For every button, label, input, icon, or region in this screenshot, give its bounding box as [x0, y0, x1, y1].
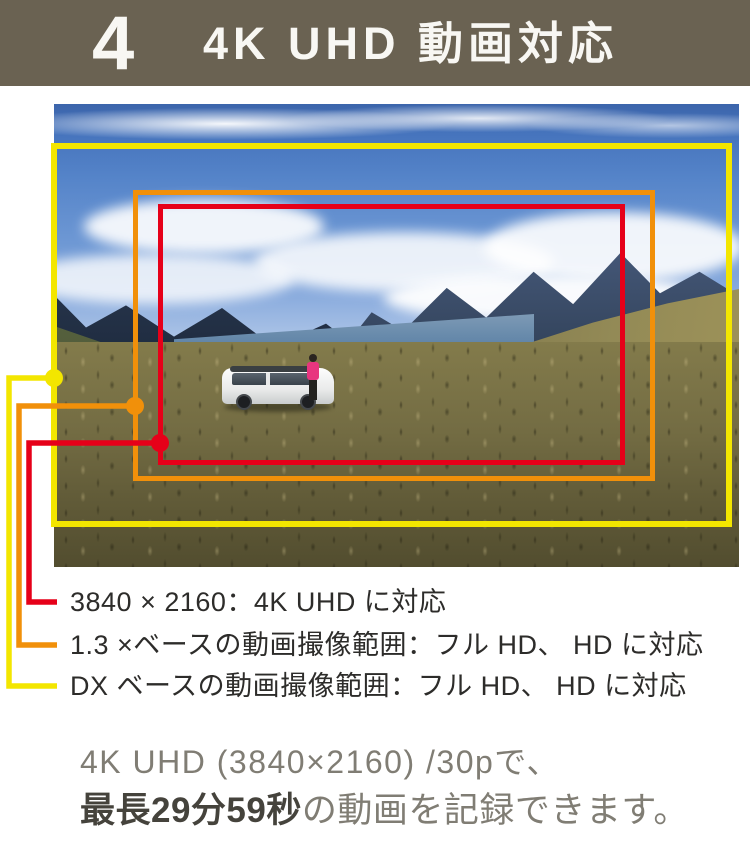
footer-spec-line: 4K UHD (3840×2160) /30pで、: [80, 737, 560, 783]
legend-item-1-3x: 1.3 ×ベースの動画撮像範囲：フル HD、 HD に対応: [70, 629, 703, 661]
footer-duration-emphasis: 最長29分59秒: [80, 791, 302, 830]
page-title: 4K UHD 動画対応: [203, 0, 618, 88]
page: 4 4K UHD 動画対応: [0, 0, 750, 850]
4k-uhd-frame: [158, 204, 625, 465]
step-number: 4: [92, 2, 134, 86]
cloud-band: [54, 104, 739, 140]
legend-item-dx: DX ベースの動画撮像範囲：フル HD、 HD に対応: [70, 670, 687, 702]
header-banner: 4 4K UHD 動画対応: [0, 0, 750, 86]
legend-item-4k: 3840 × 2160：4K UHD に対応: [70, 586, 446, 618]
footer-duration-rest: の動画を記録できます。: [302, 791, 689, 830]
footer-duration-line: 最長29分59秒の動画を記録できます。: [80, 782, 689, 833]
yellow-connector-line: [9, 378, 57, 686]
